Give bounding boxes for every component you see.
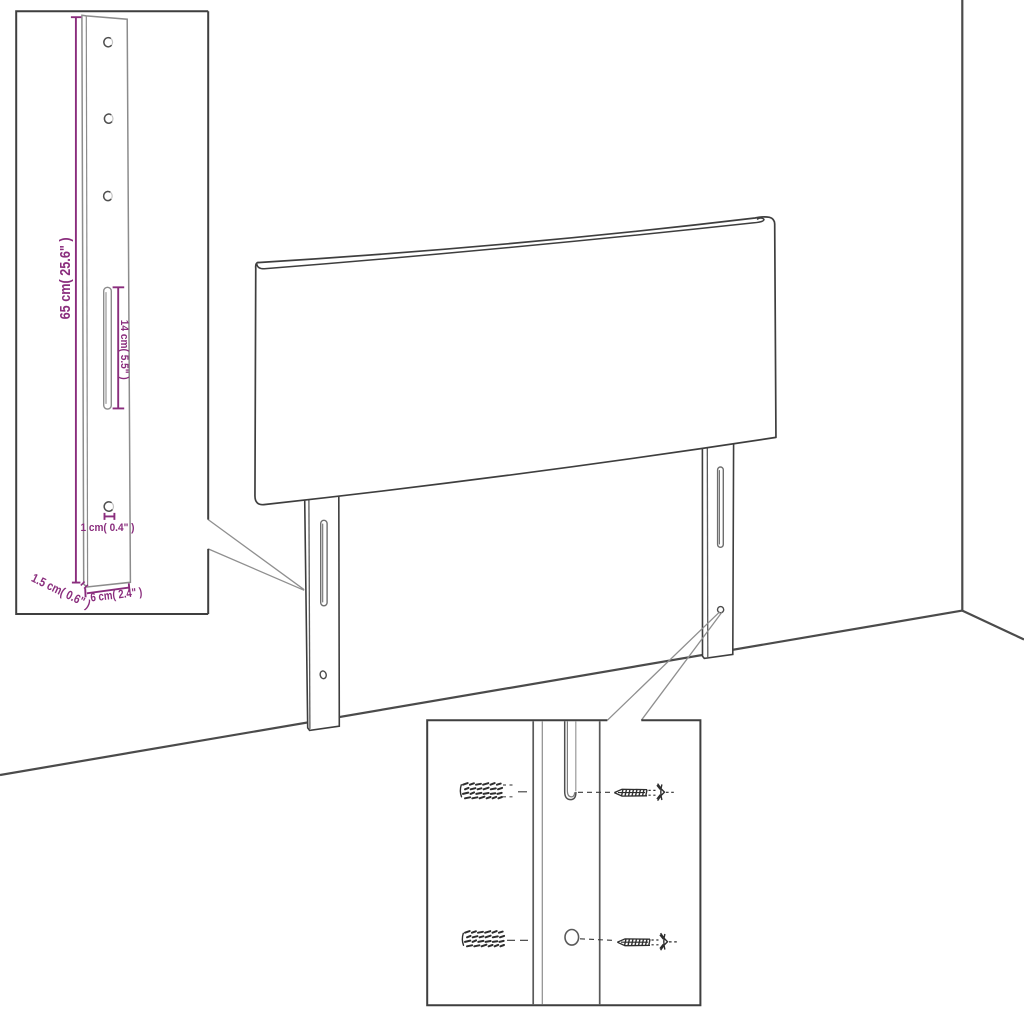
svg-text:14 cm( 5.5" ): 14 cm( 5.5" ) (118, 320, 130, 380)
svg-text:1 cm( 0.4" ): 1 cm( 0.4" ) (81, 522, 135, 534)
svg-text:65 cm( 25.6" ): 65 cm( 25.6" ) (57, 237, 74, 319)
